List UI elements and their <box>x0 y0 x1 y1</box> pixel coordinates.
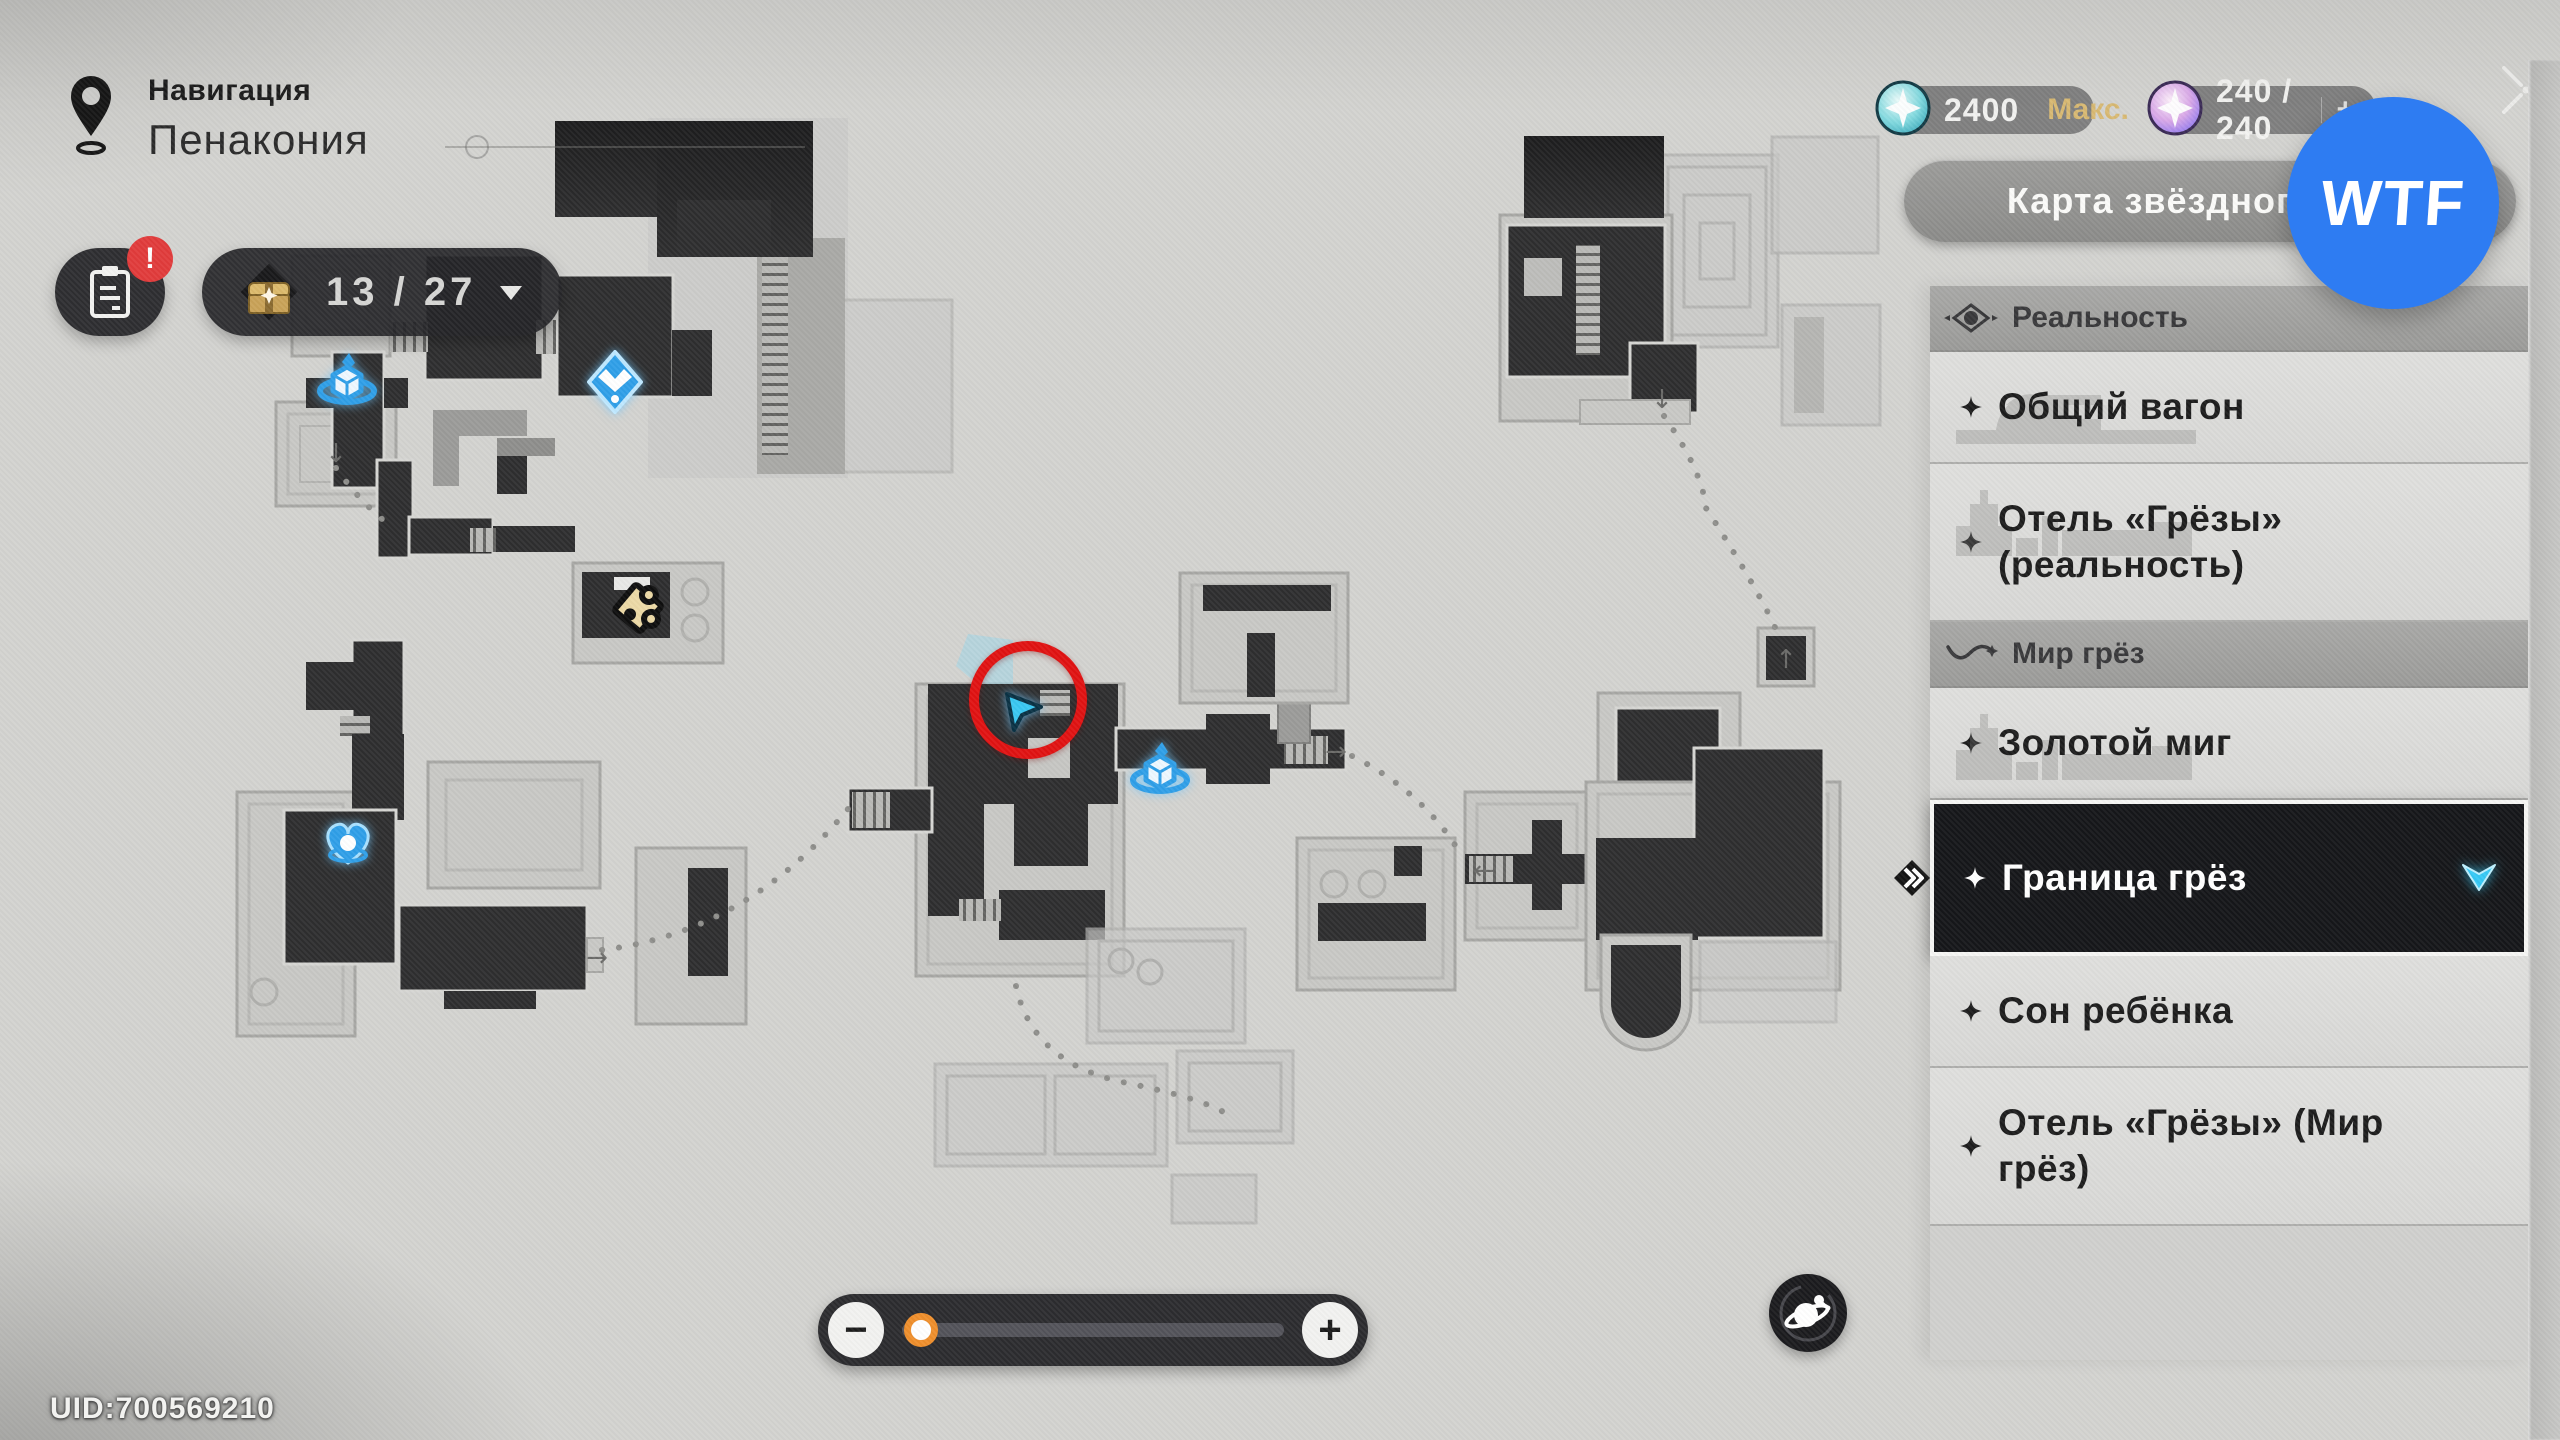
navigation-header: Навигация Пенакония <box>62 74 369 164</box>
map-cluster-topright <box>1500 136 1880 425</box>
svg-text:→: → <box>586 943 608 973</box>
trailblaze-power-counter: 2400 Макс. <box>1878 86 2094 134</box>
panel-edge-texture <box>2528 60 2560 1440</box>
map-zoom-slider: − + <box>818 1294 1368 1366</box>
location-label: Граница грёз <box>2002 855 2247 901</box>
uid-label: UID:700569210 <box>50 1392 275 1426</box>
teal-currency-icon <box>1874 79 1932 137</box>
svg-text:→: → <box>1325 737 1347 767</box>
chest-icon <box>236 259 302 325</box>
location-label: Общий вагон <box>1998 384 2245 430</box>
sidebar-rows: РеальностьОбщий вагонОтель «Грёзы» (реал… <box>1930 286 2528 1226</box>
sparkle-icon <box>1960 396 1982 418</box>
sidebar-item-son-rebenka[interactable]: Сон ребёнка <box>1930 956 2528 1068</box>
location-label: Отель «Грёзы» (реальность) <box>1998 496 2458 588</box>
nav-label: Навигация <box>148 74 369 108</box>
currency-value: 2400 <box>1944 92 2019 129</box>
sparkle-icon <box>1964 867 1986 889</box>
currency-max-label: Макс. <box>2047 93 2129 127</box>
quest-log-button[interactable]: ! <box>55 248 165 336</box>
svg-text:←: ← <box>1473 856 1495 886</box>
section-label: Реальность <box>2012 301 2188 335</box>
zoom-in-button[interactable]: + <box>1302 1302 1358 1358</box>
notification-badge: ! <box>127 236 173 282</box>
dream-heart-marker[interactable] <box>328 824 368 863</box>
map-cluster-right <box>1297 628 1840 1050</box>
sidebar-item-otel-grezy-mir-grez[interactable]: Отель «Грёзы» (Мир грёз) <box>1930 1068 2528 1226</box>
sparkle-icon <box>1960 531 1982 553</box>
selected-arrow-icon <box>2460 863 2498 893</box>
currency-value: 240 / 240 <box>2216 73 2307 147</box>
sidebar-item-zolotoy-mig[interactable]: Золотой миг <box>1930 688 2528 800</box>
section-label: Мир грёз <box>2012 637 2145 671</box>
chevron-down-icon <box>500 286 522 300</box>
dream-wave-icon <box>1944 639 1998 669</box>
svg-text:↓: ↓ <box>1651 385 1673 415</box>
sparkle-icon <box>1960 1000 1982 1022</box>
sidebar-section-dream-world: Мир грёз <box>1930 622 2528 688</box>
reality-eye-icon <box>1944 303 1998 333</box>
planet-icon <box>1773 1278 1843 1348</box>
location-label: Сон ребёнка <box>1998 988 2233 1034</box>
location-pin-icon <box>62 74 120 160</box>
svg-text:↓: ↓ <box>325 439 347 469</box>
selected-pointer-icon <box>1892 858 1932 898</box>
location-label: Отель «Грёзы» (Мир грёз) <box>1998 1100 2458 1192</box>
location-label: Золотой миг <box>1998 720 2232 766</box>
location-list-panel: РеальностьОбщий вагонОтель «Грёзы» (реал… <box>1930 286 2528 1360</box>
zoom-out-button[interactable]: − <box>828 1302 884 1358</box>
zoom-knob[interactable] <box>904 1313 938 1347</box>
pink-currency-icon <box>2146 79 2204 137</box>
sidebar-item-otel-grezy-realnost[interactable]: Отель «Грёзы» (реальность) <box>1930 464 2528 622</box>
region-title: Пенакония <box>148 116 369 164</box>
svg-text:↑: ↑ <box>1775 645 1797 675</box>
map-screen: ↓ ↓ ↑ ← → → Навигация Пенакония <box>0 0 2560 1440</box>
wtf-watermark-badge: WTF <box>2287 97 2499 309</box>
clipboard-icon <box>86 264 134 320</box>
map-cluster-center <box>848 573 1348 1223</box>
divider <box>2321 97 2322 123</box>
chest-counter-dropdown[interactable]: 13 / 27 <box>202 248 562 336</box>
chest-count-label: 13 / 27 <box>326 270 476 315</box>
decorative-line <box>445 146 805 148</box>
zoom-track[interactable] <box>902 1323 1284 1337</box>
sidebar-item-obshchiy-vagon[interactable]: Общий вагон <box>1930 352 2528 464</box>
sparkle-icon <box>1960 732 1982 754</box>
planet-view-button[interactable] <box>1769 1274 1847 1352</box>
sparkle-icon <box>1960 1135 1982 1157</box>
sidebar-item-granitsa-grez[interactable]: Граница грёз <box>1930 800 2528 956</box>
wtf-label: WTF <box>2318 166 2468 240</box>
